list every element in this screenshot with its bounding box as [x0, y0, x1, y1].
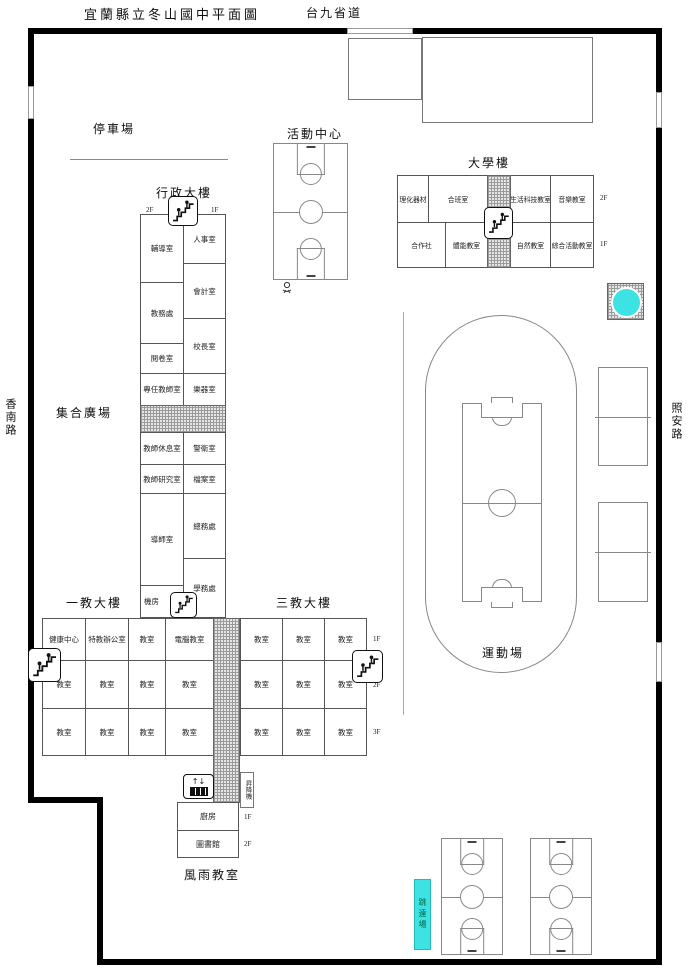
daxue-building-label: 大學樓 — [468, 154, 510, 171]
gate-east-upper — [656, 92, 662, 128]
volleyball-court — [598, 367, 648, 466]
room-cell: 樂器室 — [183, 373, 226, 406]
kitchen-floor-label: 1F — [244, 813, 251, 821]
room-cell: 生活科技教室 — [510, 175, 551, 223]
room-cell: 教室 — [128, 618, 166, 661]
walkway-hatch — [140, 405, 226, 433]
road-label-east: 照安路 — [668, 402, 684, 441]
room-cell: 教務處 — [140, 282, 184, 344]
building-one-label: 一教大樓 — [66, 594, 122, 611]
campus-plan: 宜蘭縣立冬山國中平面圖 台九省道 香南路 照安路 停車場 活動中心 行政大樓 2… — [0, 0, 692, 973]
room-cell: 教室 — [324, 708, 367, 756]
elevator-label: 昇降機 — [242, 780, 252, 800]
room-cell: 教師研究室 — [140, 464, 184, 494]
stairs-icon — [170, 592, 197, 618]
floor-label-3f: 3F — [373, 728, 380, 736]
activity-center-court — [273, 143, 348, 280]
assembly-plaza-label: 集合廣場 — [56, 404, 112, 421]
south-corridor-hatch — [213, 618, 240, 803]
room-cell: 教室 — [165, 708, 214, 756]
room-cell: 閱卷室 — [140, 343, 184, 374]
room-cell: 合班室 — [428, 175, 488, 223]
room-cell: 專任教師室 — [140, 373, 184, 406]
room-cell: 校長室 — [183, 318, 226, 374]
room-cell: 自然教室 — [510, 222, 551, 268]
room-cell: 體能教室 — [445, 222, 488, 268]
elevator-shaft: 昇降機 — [240, 772, 254, 808]
page-title: 宜蘭縣立冬山國中平面圖 — [84, 4, 260, 23]
room-cell: 教室 — [85, 708, 129, 756]
room-cell: 教室 — [240, 618, 283, 661]
room-cell: 總務處 — [183, 493, 226, 559]
room-cell: 檔案室 — [183, 464, 226, 494]
room-cell: 教室 — [128, 660, 166, 709]
stairs-icon — [28, 648, 61, 682]
daxue-floor-1f: 1F — [600, 240, 607, 248]
wall-south — [97, 959, 662, 965]
room-cell: 教師休息室 — [140, 432, 184, 465]
room-cell: 電腦教室 — [165, 618, 214, 661]
room-cell: 教室 — [42, 708, 86, 756]
room-cell: 理化器材 — [397, 175, 429, 223]
room-cell: 音樂教室 — [550, 175, 594, 223]
wall-east — [656, 28, 662, 965]
road-label-north: 台九省道 — [306, 4, 362, 21]
wall-west-upper — [28, 28, 34, 803]
room-cell: 教室 — [85, 660, 129, 709]
soccer-pitch — [462, 403, 542, 602]
small-figure-icon — [280, 281, 294, 300]
library-floor-label: 2F — [244, 840, 251, 848]
parking-line — [70, 159, 228, 160]
room-cell: 教室 — [128, 708, 166, 756]
wall-west-lower — [97, 797, 103, 965]
road-label-west: 香南路 — [2, 398, 18, 437]
gate-north — [347, 28, 413, 34]
stairs-icon — [484, 207, 513, 239]
basketball-court — [441, 838, 503, 955]
room-cell: 廚房 — [177, 802, 239, 831]
basketball-court — [530, 838, 592, 955]
room-cell: 綜合活動教室 — [550, 222, 594, 268]
north-building-large — [422, 37, 593, 123]
room-cell: 教室 — [282, 660, 325, 709]
room-cell: 合作社 — [397, 222, 446, 268]
room-cell: 教室 — [240, 660, 283, 709]
parking-label: 停車場 — [93, 120, 135, 137]
long-jump-label: 跳遠場 — [417, 898, 428, 931]
gate-east-lower — [656, 642, 662, 682]
sports-field-label: 運動場 — [482, 644, 524, 661]
room-cell: 特教辦公室 — [85, 618, 129, 661]
volleyball-court — [598, 502, 648, 602]
activity-center-label: 活動中心 — [287, 125, 343, 142]
room-cell: 教室 — [282, 708, 325, 756]
water-feature-icon — [611, 287, 642, 318]
elevator-icon: ↑↓ — [183, 774, 214, 799]
gate-west — [28, 86, 34, 119]
room-cell: 會計室 — [183, 263, 226, 319]
wall-north — [28, 28, 662, 34]
north-building-small — [348, 38, 422, 100]
room-cell: 教室 — [282, 618, 325, 661]
room-cell: 警衛室 — [183, 432, 226, 465]
room-cell: 教室 — [240, 708, 283, 756]
admin-floor-right: 1F — [211, 206, 218, 214]
field-divider-line — [403, 312, 404, 715]
room-cell: 導師室 — [140, 493, 184, 586]
room-cell: 圖書館 — [177, 830, 239, 858]
stairs-icon — [168, 196, 198, 226]
daxue-floor-2f: 2F — [600, 194, 607, 202]
room-cell: 教室 — [165, 660, 214, 709]
stairs-icon — [352, 650, 383, 683]
floor-label-1f: 1F — [373, 635, 380, 643]
court-center-circle — [299, 200, 323, 224]
building-three-label: 三教大樓 — [276, 594, 332, 611]
wall-southwest-step — [28, 797, 103, 803]
rain-classroom-label: 風雨教室 — [184, 866, 240, 883]
long-jump-area: 跳遠場 — [414, 879, 431, 950]
admin-floor-left: 2F — [146, 206, 153, 214]
